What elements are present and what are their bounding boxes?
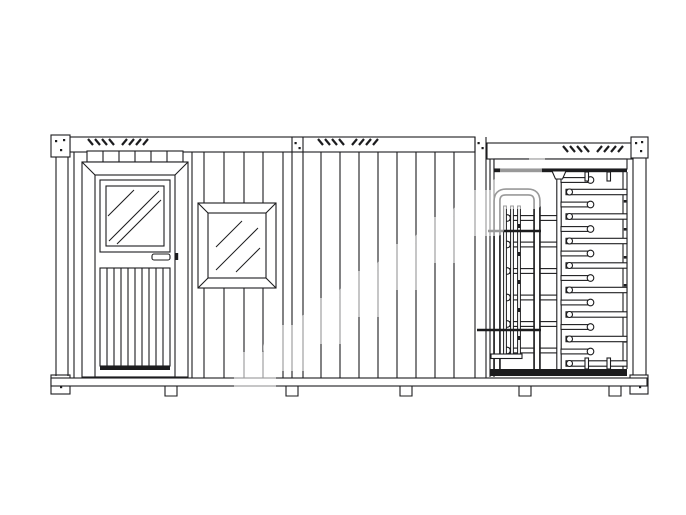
office-section [74, 151, 283, 378]
junction-post [475, 137, 486, 386]
cage-bar [504, 206, 507, 358]
door [82, 162, 188, 377]
fixed-barrier-bar [566, 238, 627, 243]
drawing-canvas [0, 0, 686, 515]
cage-bar [511, 206, 514, 358]
turnstile-base [490, 369, 627, 376]
rotor-shaft [557, 179, 561, 370]
foot [286, 386, 298, 396]
fixed-barrier-bar [566, 263, 627, 268]
technical-elevation-drawing [0, 0, 686, 515]
wall-window [198, 203, 276, 288]
fixed-barrier-bar [566, 287, 627, 292]
door-louver-vent [100, 268, 170, 370]
support-feet [165, 386, 621, 396]
door-lock [175, 253, 178, 260]
foot [609, 386, 621, 396]
door-transom [87, 151, 183, 162]
fixed-barrier-bar [566, 336, 627, 341]
fixed-barrier-bar [566, 189, 627, 194]
foot [165, 386, 177, 396]
door-window [100, 180, 170, 252]
corner-fitting [631, 137, 648, 158]
foot [519, 386, 531, 396]
fixed-barrier-bar [566, 214, 627, 219]
corner-fitting [51, 135, 70, 157]
bottom-rail [51, 378, 647, 386]
foot [400, 386, 412, 396]
fixed-barrier-bar [566, 361, 627, 366]
fixed-barrier-bar [566, 312, 627, 317]
